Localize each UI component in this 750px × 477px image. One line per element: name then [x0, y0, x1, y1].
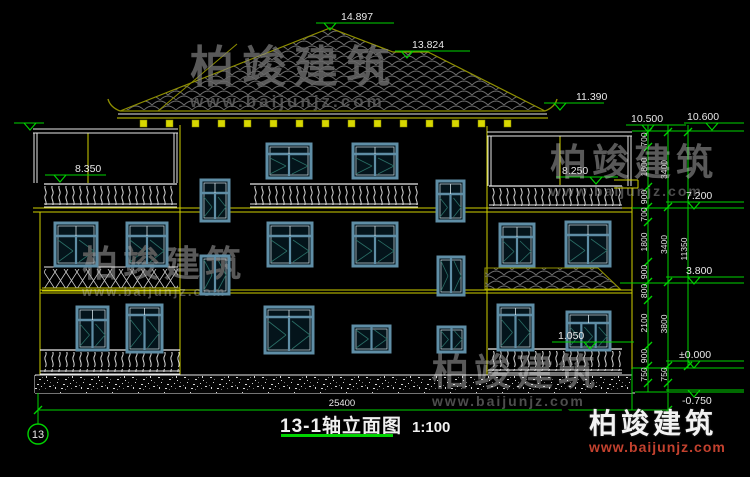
eave-bracket: [218, 120, 225, 127]
elevation-label: 11.390: [576, 91, 607, 103]
window: [353, 326, 390, 352]
eave-bracket: [504, 120, 511, 127]
window: [500, 224, 534, 266]
elevation-label: 8.350: [75, 163, 101, 175]
dim-label: 1800: [639, 232, 649, 251]
dim-label: 800: [639, 284, 649, 298]
window: [127, 305, 162, 352]
window: [265, 307, 313, 353]
elevation-label: ±0.000: [679, 349, 711, 361]
dim-label: 700: [639, 207, 649, 221]
dim-label: 700: [639, 132, 649, 146]
elevation-marker: [54, 175, 66, 182]
window: [267, 144, 311, 178]
windows: [55, 144, 610, 353]
elevation-label: 8.250: [562, 165, 588, 177]
title-block: 13-1轴立面图1:100: [280, 411, 450, 438]
brand-logo: 柏竣建筑 www.baijunjz.com: [531, 402, 726, 462]
logo-url: www.baijunjz.com: [589, 439, 726, 455]
eave-bracket: [400, 120, 407, 127]
drawing-scale: 1:100: [412, 419, 450, 436]
eave-bracket: [296, 120, 303, 127]
brand-building-icon: [531, 402, 583, 462]
dim-label: 750: [639, 367, 649, 381]
foundation: [35, 376, 632, 393]
eave-bracket: [348, 120, 355, 127]
elevation-marker: [590, 177, 602, 184]
dim-label: 11350: [679, 237, 689, 260]
window: [77, 307, 108, 350]
eave-bracket: [452, 120, 459, 127]
window: [127, 223, 167, 266]
dim-label: 750: [659, 367, 669, 381]
window: [201, 180, 229, 221]
dim-label: 3800: [659, 314, 669, 333]
window: [566, 222, 610, 266]
eave-bracket: [270, 120, 277, 127]
elevation-label: 13.824: [412, 39, 444, 51]
dim-label: 3400: [659, 235, 669, 254]
dim-label: 900: [639, 265, 649, 279]
window: [498, 305, 533, 350]
axis-bubble-label: 13: [32, 429, 44, 441]
window: [353, 223, 397, 266]
eave-bracket: [426, 120, 433, 127]
elevation-marker: [554, 103, 566, 110]
window: [438, 327, 465, 352]
eave-bracket: [140, 120, 147, 127]
dim-label: 900: [639, 349, 649, 363]
eave-bracket: [192, 120, 199, 127]
window: [268, 223, 312, 266]
elevation-marker: [706, 123, 718, 130]
eave-bracket: [166, 120, 173, 127]
window: [353, 144, 397, 178]
dim-label: 1800: [639, 157, 649, 176]
title-underline: [281, 434, 393, 437]
elevation-label: 10.500: [631, 113, 663, 125]
window: [201, 256, 229, 294]
cad-screenshot: 柏竣建筑 www.baijunjz.com 柏竣建筑 www.baijunjz.…: [0, 0, 750, 477]
window: [438, 257, 464, 295]
dim-label: 900: [639, 190, 649, 204]
eave-bracket: [374, 120, 381, 127]
window: [437, 181, 464, 221]
elevation-label: 14.897: [341, 11, 373, 23]
elevation-label: 1.050: [558, 330, 584, 342]
window: [55, 223, 97, 266]
logo-brand: 柏竣建筑: [589, 409, 726, 438]
eave-bracket: [478, 120, 485, 127]
dim-label: 3400: [659, 160, 669, 179]
elevation-label: 10.600: [687, 111, 719, 123]
elevation-label: 3.800: [686, 265, 712, 277]
overall-dim-label: 25400: [329, 398, 355, 409]
elevation-label: 7.200: [686, 190, 712, 202]
eave-bracket: [244, 120, 251, 127]
building-walls: [33, 111, 638, 393]
eave-bracket: [322, 120, 329, 127]
dim-label: 2100: [639, 313, 649, 332]
